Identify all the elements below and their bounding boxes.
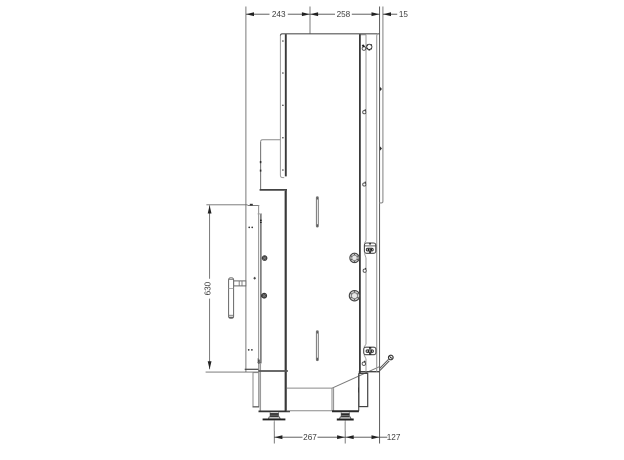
svg-text:267: 267: [303, 433, 317, 442]
svg-text:127: 127: [387, 433, 401, 442]
svg-text:258: 258: [337, 10, 351, 19]
svg-text:630: 630: [204, 281, 213, 295]
svg-text:243: 243: [272, 10, 286, 19]
svg-text:15: 15: [399, 10, 409, 19]
